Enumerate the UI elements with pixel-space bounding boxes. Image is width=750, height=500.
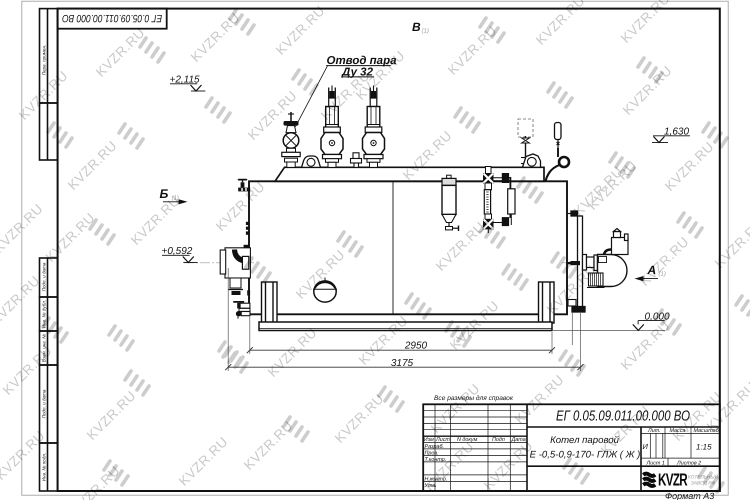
svg-text:(1): (1) [422,28,429,35]
svg-text:KVZR.RU: KVZR.RU [637,234,692,289]
svg-text:KVZR.RU: KVZR.RU [0,201,46,256]
svg-text:KVZR.RU: KVZR.RU [43,210,98,265]
svg-text:Перв. примен.: Перв. примен. [41,45,46,76]
svg-text:KVZR.RU: KVZR.RU [84,388,139,443]
svg-text:KVZR.RU: KVZR.RU [712,216,750,271]
svg-text:Формат А3: Формат А3 [665,491,714,500]
svg-text:Листов 2: Листов 2 [676,461,701,467]
svg-text:KVZR.RU: KVZR.RU [241,418,296,473]
svg-text:2950: 2950 [404,341,428,352]
svg-text:KVZR: KVZR [658,470,688,490]
svg-text:Подп. и дата: Подп. и дата [41,389,46,418]
svg-text:KVZR.RU: KVZR.RU [176,434,231,489]
svg-text:KVZR.RU: KVZR.RU [0,343,55,398]
svg-text:Лит.: Лит. [647,428,661,434]
svg-text:KVZR.RU: KVZR.RU [662,139,717,194]
svg-text:1:15: 1:15 [696,443,712,452]
svg-text:Е -0,5-0,9-170- ГЛЖ ( Ж ): Е -0,5-0,9-170- ГЛЖ ( Ж ) [530,450,641,461]
svg-text:KVZR.RU: KVZR.RU [93,25,148,80]
svg-text:KVZR.RU: KVZR.RU [188,10,243,65]
svg-text:KVZR.RU: KVZR.RU [533,0,588,48]
svg-text:KVZR.RU: KVZR.RU [65,138,120,193]
svg-text:Подп: Подп [492,437,505,443]
svg-text:KVZR.RU: KVZR.RU [618,0,673,46]
svg-text:KVZR.RU: KVZR.RU [128,193,183,248]
svg-text:KVZR.RU: KVZR.RU [618,318,673,373]
svg-text:Подп. и дата: Подп. и дата [41,262,46,291]
svg-text:KVZR.RU: KVZR.RU [213,179,268,234]
svg-text:KVZR.RU: KVZR.RU [332,391,387,446]
svg-text:Инв. № подл.: Инв. № подл. [41,453,46,482]
svg-text:В: В [412,20,421,34]
svg-text:KVZR.RU: KVZR.RU [400,128,455,183]
svg-text:Лист: Лист [435,437,450,443]
svg-text:KVZR.RU: KVZR.RU [68,463,123,500]
svg-text:KVZR.RU: KVZR.RU [265,325,320,380]
svg-text:3175: 3175 [391,358,414,369]
svg-text:Разраб.: Разраб. [425,444,445,450]
svg-text:KVZR.RU: KVZR.RU [433,219,488,274]
svg-text:KVZR.RU: KVZR.RU [293,247,348,302]
svg-text:KVZR.RU: KVZR.RU [428,381,483,436]
svg-text:KVZR.RU: KVZR.RU [445,23,500,78]
svg-text:Пров.: Пров. [425,451,439,457]
svg-text:KVZR.RU: KVZR.RU [273,3,328,58]
svg-text:Лист 1: Лист 1 [646,461,665,467]
svg-text:Изм: Изм [424,437,434,443]
svg-text:И: И [643,442,649,451]
svg-text:ЕГ 0.05.09.011.00.000 ВО: ЕГ 0.05.09.011.00.000 ВО [62,12,162,24]
svg-text:KVZR.RU: KVZR.RU [620,63,675,118]
